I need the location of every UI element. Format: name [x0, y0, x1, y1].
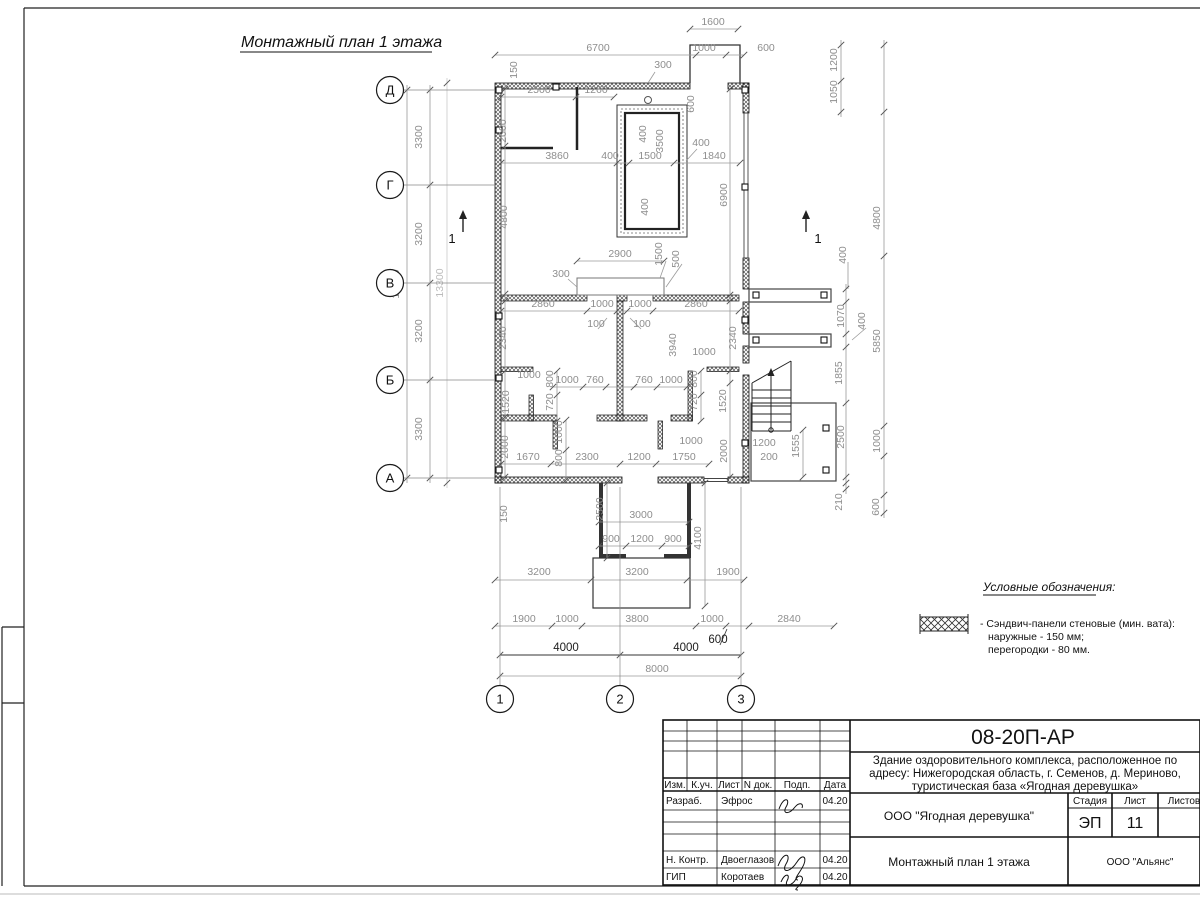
tb-date: 04.20 — [822, 855, 847, 866]
dim-label: 1000 — [700, 613, 724, 625]
drawing-title: Монтажный план 1 этажа — [240, 34, 442, 52]
dim-label: 600 — [708, 634, 727, 646]
legend-item-line1: - Сэндвич-панели стеновые (мин. вата): — [980, 618, 1175, 630]
title-block-person-rows: Разраб.Эфрос04.20Н. Контр.Двоеглазов04.2… — [666, 795, 848, 883]
dim-label: 3000 — [629, 509, 653, 521]
dim-label: 1000 — [659, 374, 683, 386]
section-arrowhead — [802, 210, 810, 219]
tb-col-header: Дата — [824, 780, 847, 791]
dim-label: 1200 — [630, 533, 654, 545]
dim-label: 900 — [602, 533, 620, 545]
axis-label: Г — [386, 178, 393, 193]
dim-label: 3940 — [667, 333, 679, 357]
tb-date: 04.20 — [822, 872, 847, 883]
tb-role: Н. Контр. — [666, 855, 709, 866]
axis-label: Б — [386, 373, 395, 388]
dim-label: 400 — [856, 312, 868, 330]
doc-code: 08-20П-АР — [971, 726, 1075, 749]
dim-label: 1555 — [790, 434, 802, 458]
dim-label: 400 — [601, 150, 619, 162]
tb-name: Двоеглазов — [721, 855, 774, 866]
contractor-name: ООО "Альянс" — [1107, 857, 1174, 868]
signature-1 — [779, 800, 802, 813]
signatures — [778, 800, 805, 890]
dim-label: 3860 — [545, 150, 569, 162]
dim-label: 3200 — [413, 222, 425, 246]
dimension-chains — [404, 26, 887, 679]
axis-label: Д — [386, 83, 395, 98]
dim-label: 2500 — [594, 497, 606, 521]
dim-label: 6900 — [718, 183, 730, 207]
drawing-title-cell: Монтажный план 1 этажа — [888, 855, 1030, 869]
dim-label: 2300 — [575, 451, 599, 463]
dimension-labels: 1600670010006003001502500126020006004003… — [390, 16, 883, 675]
section-label: 1 — [814, 231, 821, 246]
legend: Условные обозначения: - Сэндвич-панели с… — [920, 580, 1175, 656]
dim-label: 2900 — [608, 248, 632, 260]
tb-date: 04.20 — [822, 796, 847, 807]
axis-label: 2 — [616, 692, 623, 707]
dim-label: 150 — [508, 61, 520, 79]
sheets-label: Листов — [1168, 796, 1200, 807]
stairs — [752, 361, 791, 432]
dim-label: 210 — [833, 493, 845, 511]
dim-label: 900 — [664, 533, 682, 545]
dim-label: 1260 — [584, 84, 608, 96]
dim-label: 100 — [587, 318, 605, 330]
stage-value: ЭП — [1079, 815, 1102, 832]
dim-label: 2340 — [727, 326, 739, 350]
project-line3: туристическая база «Ягодная деревушка» — [912, 781, 1138, 793]
exterior-walls — [495, 83, 749, 483]
dim-label: 1670 — [516, 451, 540, 463]
dim-label: 4000 — [553, 642, 579, 654]
dim-label: 1000 — [628, 298, 652, 310]
tb-role: Разраб. — [666, 795, 702, 807]
dim-label: 720 — [688, 393, 700, 411]
dim-label: 400 — [837, 246, 849, 264]
tb-col-header: Изм. — [664, 780, 685, 791]
signature-3 — [781, 875, 802, 890]
tb-name: Эфрос — [721, 795, 753, 807]
dim-label: 1750 — [672, 451, 696, 463]
axis-label: В — [386, 276, 395, 291]
dim-label: 4100 — [692, 526, 704, 550]
dim-label: 400 — [637, 125, 649, 143]
company-name: ООО "Ягодная деревушка" — [884, 809, 1034, 823]
dim-label: 1500 — [653, 242, 665, 266]
dim-label: 1855 — [833, 361, 845, 385]
project-line1: Здание оздоровительного комплекса, распо… — [873, 755, 1177, 767]
dim-label: 600 — [757, 42, 775, 54]
dim-label: 1000 — [517, 369, 541, 381]
section-label: 1 — [448, 231, 455, 246]
dim-label: 1600 — [701, 16, 725, 28]
dim-label: 1000 — [692, 346, 716, 358]
dim-label: 1900 — [512, 613, 536, 625]
sheet-label: Лист — [1124, 796, 1146, 807]
dim-label: 1050 — [828, 80, 840, 104]
dim-label: 760 — [635, 374, 653, 386]
dim-label: 2860 — [531, 298, 555, 310]
dim-label: 100 — [633, 318, 651, 330]
dim-label: 2000 — [718, 439, 730, 463]
dim-label: 4800 — [498, 205, 510, 229]
dim-label: 2000 — [497, 119, 509, 143]
dim-label: 4000 — [673, 642, 699, 654]
drawing-sheet: Монтажный план 1 этажа — [0, 0, 1200, 900]
axis-label: А — [386, 471, 395, 486]
dim-label: 1000 — [555, 374, 579, 386]
dim-label: 1900 — [716, 566, 740, 578]
dim-label: 800 — [688, 370, 700, 388]
bench — [577, 278, 664, 295]
dim-label: 2500 — [527, 84, 551, 96]
dim-label: 3200 — [413, 319, 425, 343]
legend-heading: Условные обозначения: — [982, 580, 1115, 594]
tb-role: ГИП — [666, 872, 686, 883]
dim-label: 800 — [544, 370, 556, 388]
dim-label: 1200 — [828, 48, 840, 72]
title-block-header-row: Изм.К.уч.ЛистN док.Подп.Дата — [664, 780, 846, 791]
dim-label: 300 — [654, 59, 672, 71]
dim-label: 1000 — [679, 435, 703, 447]
dim-label: 300 — [552, 268, 570, 280]
dim-label: 8000 — [645, 663, 669, 675]
dim-label: 400 — [639, 198, 651, 216]
dim-label: 2000 — [499, 435, 511, 459]
dim-label: 1200 — [752, 437, 776, 449]
section-arrowhead — [459, 210, 467, 219]
dim-label: 1070 — [835, 304, 847, 328]
dim-label: 1000 — [553, 420, 565, 444]
dim-label: 600 — [870, 498, 882, 516]
dim-label: 2340 — [497, 326, 509, 350]
tb-col-header: К.уч. — [691, 780, 713, 791]
dim-label: 4800 — [871, 206, 883, 230]
dim-label: 720 — [544, 393, 556, 411]
dim-label: 600 — [685, 95, 697, 113]
dim-label: 400 — [692, 137, 710, 149]
dim-label: 3200 — [625, 566, 649, 578]
dim-label: 2500 — [835, 425, 847, 449]
sheet-number: 11 — [1127, 815, 1144, 832]
tb-col-header: Подп. — [784, 780, 811, 791]
legend-item-line2: наружные - 150 мм; — [988, 631, 1084, 643]
dim-label: 1000 — [555, 613, 579, 625]
title-block: 08-20П-АР Здание оздоровительного компле… — [663, 720, 1200, 890]
dim-label: 1000 — [871, 429, 883, 453]
dim-label: 1000 — [590, 298, 614, 310]
dim-label: 1500 — [638, 150, 662, 162]
dim-label: 800 — [553, 449, 565, 467]
dim-label: 3800 — [625, 613, 649, 625]
dim-label: 2860 — [684, 298, 708, 310]
dim-label: 1840 — [702, 150, 726, 162]
stove-block — [617, 97, 687, 238]
dim-label: 2840 — [777, 613, 801, 625]
dim-label: 6700 — [586, 42, 610, 54]
dim-label: 760 — [586, 374, 604, 386]
dim-label: 5850 — [871, 329, 883, 353]
dim-label: 200 — [760, 451, 778, 463]
tb-name: Коротаев — [721, 872, 764, 883]
dim-label: 3300 — [413, 125, 425, 149]
thin-partitions — [501, 87, 577, 150]
legend-item-line3: перегородки - 80 мм. — [988, 644, 1090, 656]
project-line2: адресу: Нижегородская область, г. Семено… — [869, 768, 1181, 780]
dim-label: 1000 — [692, 42, 716, 54]
dim-label: 1520 — [500, 390, 512, 414]
dim-label: 1200 — [627, 451, 651, 463]
dim-label: 500 — [670, 250, 682, 268]
tb-col-header: Лист — [718, 780, 740, 791]
dim-label: 1520 — [717, 389, 729, 413]
legend-wall-symbol — [920, 617, 968, 631]
plan-title-text: Монтажный план 1 этажа — [241, 34, 442, 51]
axis-label: 3 — [737, 692, 744, 707]
dim-label: 3300 — [413, 417, 425, 441]
dim-label: 3200 — [527, 566, 551, 578]
stage-label: Стадия — [1073, 796, 1107, 807]
axis-label: 1 — [496, 692, 503, 707]
tb-col-header: N док. — [744, 780, 773, 791]
floor-plan-svg: Монтажный план 1 этажа — [0, 0, 1200, 900]
